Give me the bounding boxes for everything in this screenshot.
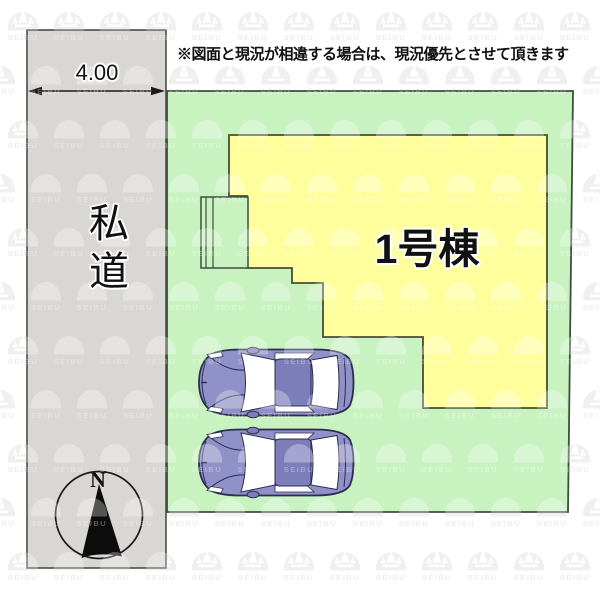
site-plan-diagram: SEIBU SEIBU SEIBU (0, 0, 600, 600)
compass-north-label: N (84, 467, 112, 493)
road-width-label: 4.00 (66, 60, 128, 86)
site-plan-canvas: SEIBU SEIBU SEIBU (0, 0, 600, 600)
disclaimer-text: ※図面と現況が相違する場合は、現況優先とさせて頂きます (177, 43, 569, 64)
watermark-ghost-layer (0, 0, 600, 600)
building-label: 1号棟 (352, 215, 502, 275)
road-label: 私道 (76, 202, 134, 298)
